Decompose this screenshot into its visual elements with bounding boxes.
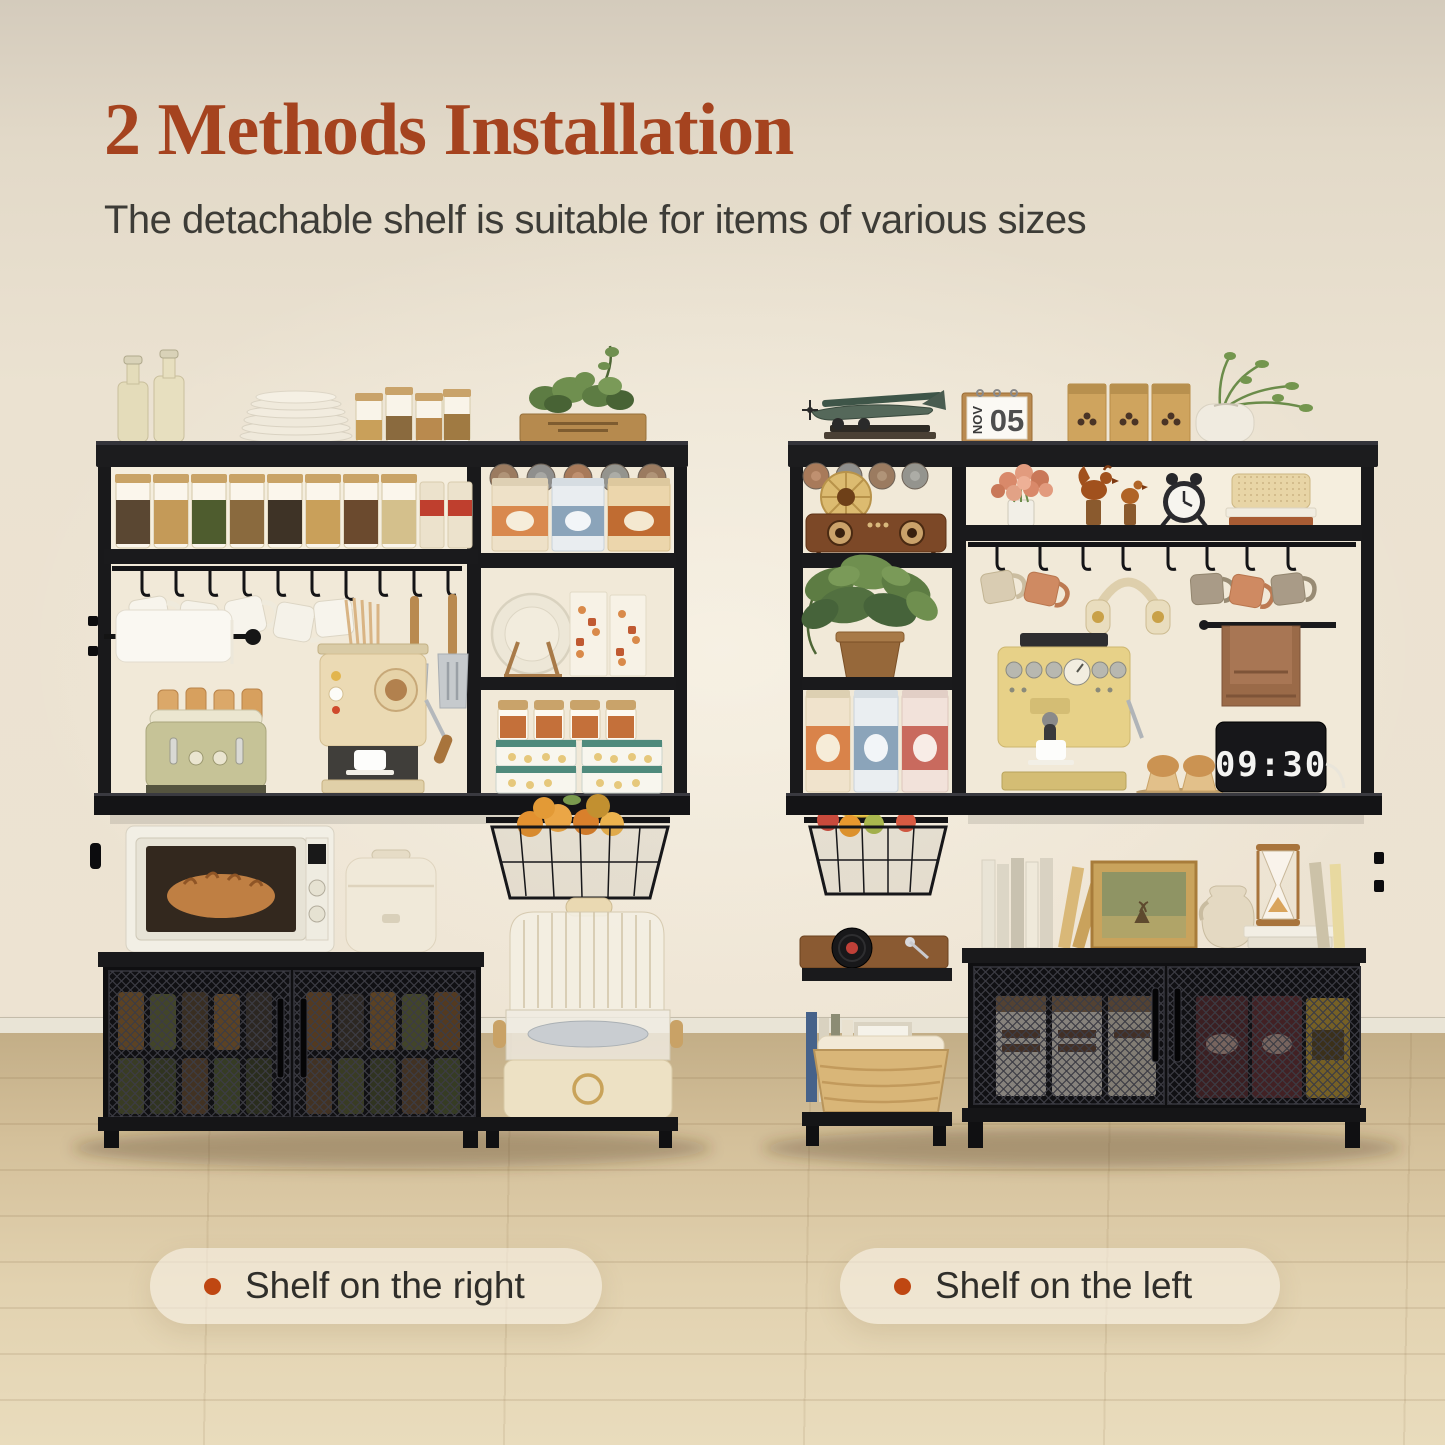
caption-shelf-on-right: Shelf on the right — [150, 1248, 602, 1324]
baseboard — [0, 1017, 1445, 1034]
product-infographic: 2 Methods Installation The detachable sh… — [0, 0, 1445, 1445]
wood-floor — [0, 1033, 1445, 1445]
caption-shelf-on-left: Shelf on the left — [840, 1248, 1280, 1324]
page-title: 2 Methods Installation — [104, 88, 793, 173]
caption-text: Shelf on the left — [935, 1265, 1192, 1307]
caption-text: Shelf on the right — [245, 1265, 525, 1307]
page-subtitle: The detachable shelf is suitable for ite… — [104, 198, 1086, 243]
bullet-icon — [894, 1278, 911, 1295]
bullet-icon — [204, 1278, 221, 1295]
